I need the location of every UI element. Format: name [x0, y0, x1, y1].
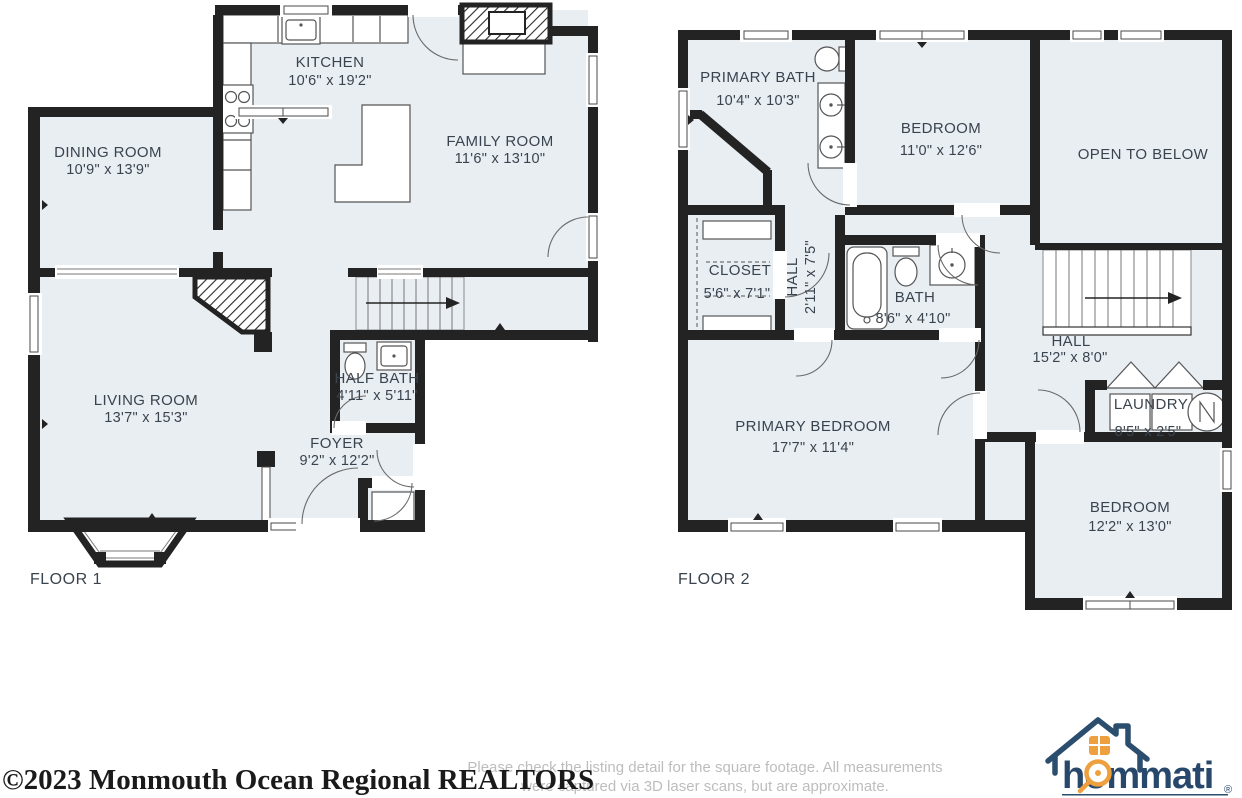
window	[893, 518, 942, 534]
room-dims-closet: 5'6" x 7'1"	[704, 286, 771, 302]
room-dims-living: 13'7" x 15'3"	[104, 410, 187, 426]
room-label-kitchen: KITCHEN	[296, 54, 365, 71]
floorplan-page: DINING ROOM 10'9" x 13'9" KITCHEN 10'6" …	[0, 0, 1242, 798]
room-dims-halfbath: 4'11" x 5'11"	[336, 388, 417, 404]
window	[728, 518, 786, 534]
room-dims-hall-big: 15'2" x 8'0"	[1032, 350, 1107, 366]
window	[235, 105, 332, 119]
primarybath-vanity-icon	[818, 83, 845, 168]
room-label-laundry: LAUNDRY	[1114, 396, 1188, 413]
room-label-closet: CLOSET	[709, 262, 771, 279]
footer: Please check the listing detail for the …	[2, 720, 1232, 797]
room-dims-primarybath: 10'4" x 10'3"	[716, 93, 799, 109]
room-label-bath: BATH	[895, 289, 936, 306]
bath-sink-icon	[930, 245, 975, 285]
glass-door	[586, 213, 600, 261]
room-label-family: FAMILY ROOM	[446, 133, 553, 150]
room-dims-foyer: 9'2" x 12'2"	[299, 453, 374, 469]
fireplace-icon	[463, 42, 545, 74]
floor1-title: FLOOR 1	[30, 571, 102, 588]
window	[1070, 28, 1104, 42]
stairs-up-floor1	[356, 277, 464, 330]
window	[280, 3, 332, 17]
room-label-open-below: OPEN TO BELOW	[1078, 146, 1209, 163]
watermark: ©2023 Monmouth Ocean Regional REALTORS	[2, 764, 594, 796]
room-label-hall-small: HALL	[784, 257, 801, 296]
hommati-logo: hommati ®	[1048, 720, 1232, 797]
window	[740, 28, 792, 42]
stair-railing	[377, 265, 423, 279]
room-label-hall-big: HALL	[1051, 333, 1090, 350]
room-dims-bath: 8'6" x 4'10"	[875, 311, 950, 327]
room-label-dining: DINING ROOM	[54, 144, 162, 161]
room-label-primarybath: PRIMARY BATH	[700, 69, 816, 86]
room-dims-bedroom-top: 11'0" x 12'6"	[900, 143, 982, 159]
room-label-primarybedroom: PRIMARY BEDROOM	[735, 418, 890, 435]
halfbath-sink-icon	[377, 342, 411, 370]
room-label-living: LIVING ROOM	[94, 392, 198, 409]
room-dims-bedroom-bottom: 12'2" x 13'0"	[1088, 519, 1171, 535]
window	[26, 293, 42, 355]
window	[1220, 448, 1234, 492]
stove-icon	[220, 43, 253, 210]
window	[876, 28, 968, 42]
foyer-closet-shelf	[372, 492, 414, 522]
room-dims-primarybedroom: 17'7" x 11'4"	[772, 440, 854, 456]
bath-toilet-icon	[893, 247, 919, 286]
water-heater-icon	[1188, 393, 1226, 431]
room-dims-dining: 10'9" x 13'9"	[66, 162, 149, 178]
room-dims-laundry: 8'5" x 2'5"	[1115, 424, 1182, 440]
room-dims-hall-small: 2'11" x 7'5"	[803, 240, 819, 314]
floorplan-canvas: DINING ROOM 10'9" x 13'9" KITCHEN 10'6" …	[0, 0, 1242, 798]
room-label-bedroom-top: BEDROOM	[901, 120, 981, 137]
room-label-bedroom-bottom: BEDROOM	[1090, 499, 1170, 516]
floor2-plan: PRIMARY BATH 10'4" x 10'3" BEDROOM 11'0"…	[676, 28, 1234, 612]
window	[586, 53, 600, 107]
cased-opening	[55, 265, 179, 279]
room-label-halfbath: HALF BATH	[334, 370, 419, 387]
stairs-floor2	[1043, 250, 1191, 335]
window	[1118, 28, 1164, 42]
room-dims-family: 11'6" x 13'10"	[455, 151, 546, 167]
primarybath-toilet-icon	[815, 47, 849, 71]
floor2-title: FLOOR 2	[678, 571, 750, 588]
window	[1083, 596, 1177, 612]
room-dims-kitchen: 10'6" x 19'2"	[288, 73, 371, 89]
room-label-foyer: FOYER	[310, 435, 364, 452]
logo-underline	[1062, 794, 1228, 796]
window	[676, 88, 690, 150]
floor1-plan: DINING ROOM 10'9" x 13'9" KITCHEN 10'6" …	[26, 3, 600, 588]
kitchen-counter	[223, 15, 408, 44]
